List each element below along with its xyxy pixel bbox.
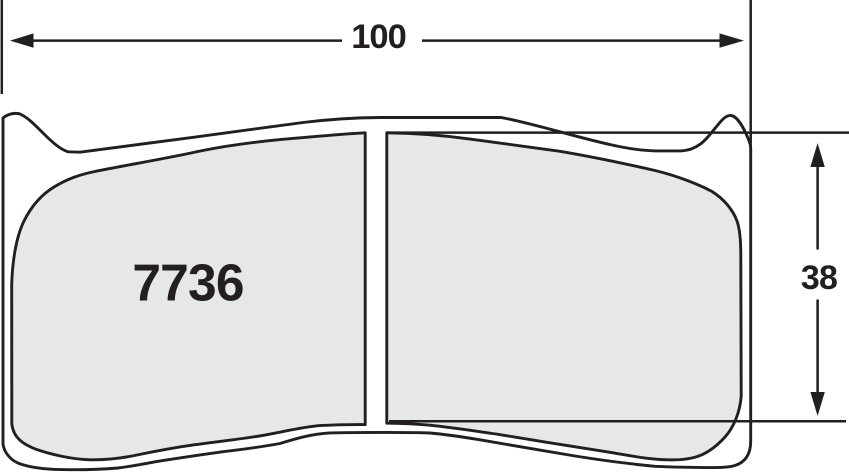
svg-text:38: 38 [801,259,837,297]
svg-text:7736: 7736 [132,254,243,312]
svg-text:100: 100 [351,18,406,56]
